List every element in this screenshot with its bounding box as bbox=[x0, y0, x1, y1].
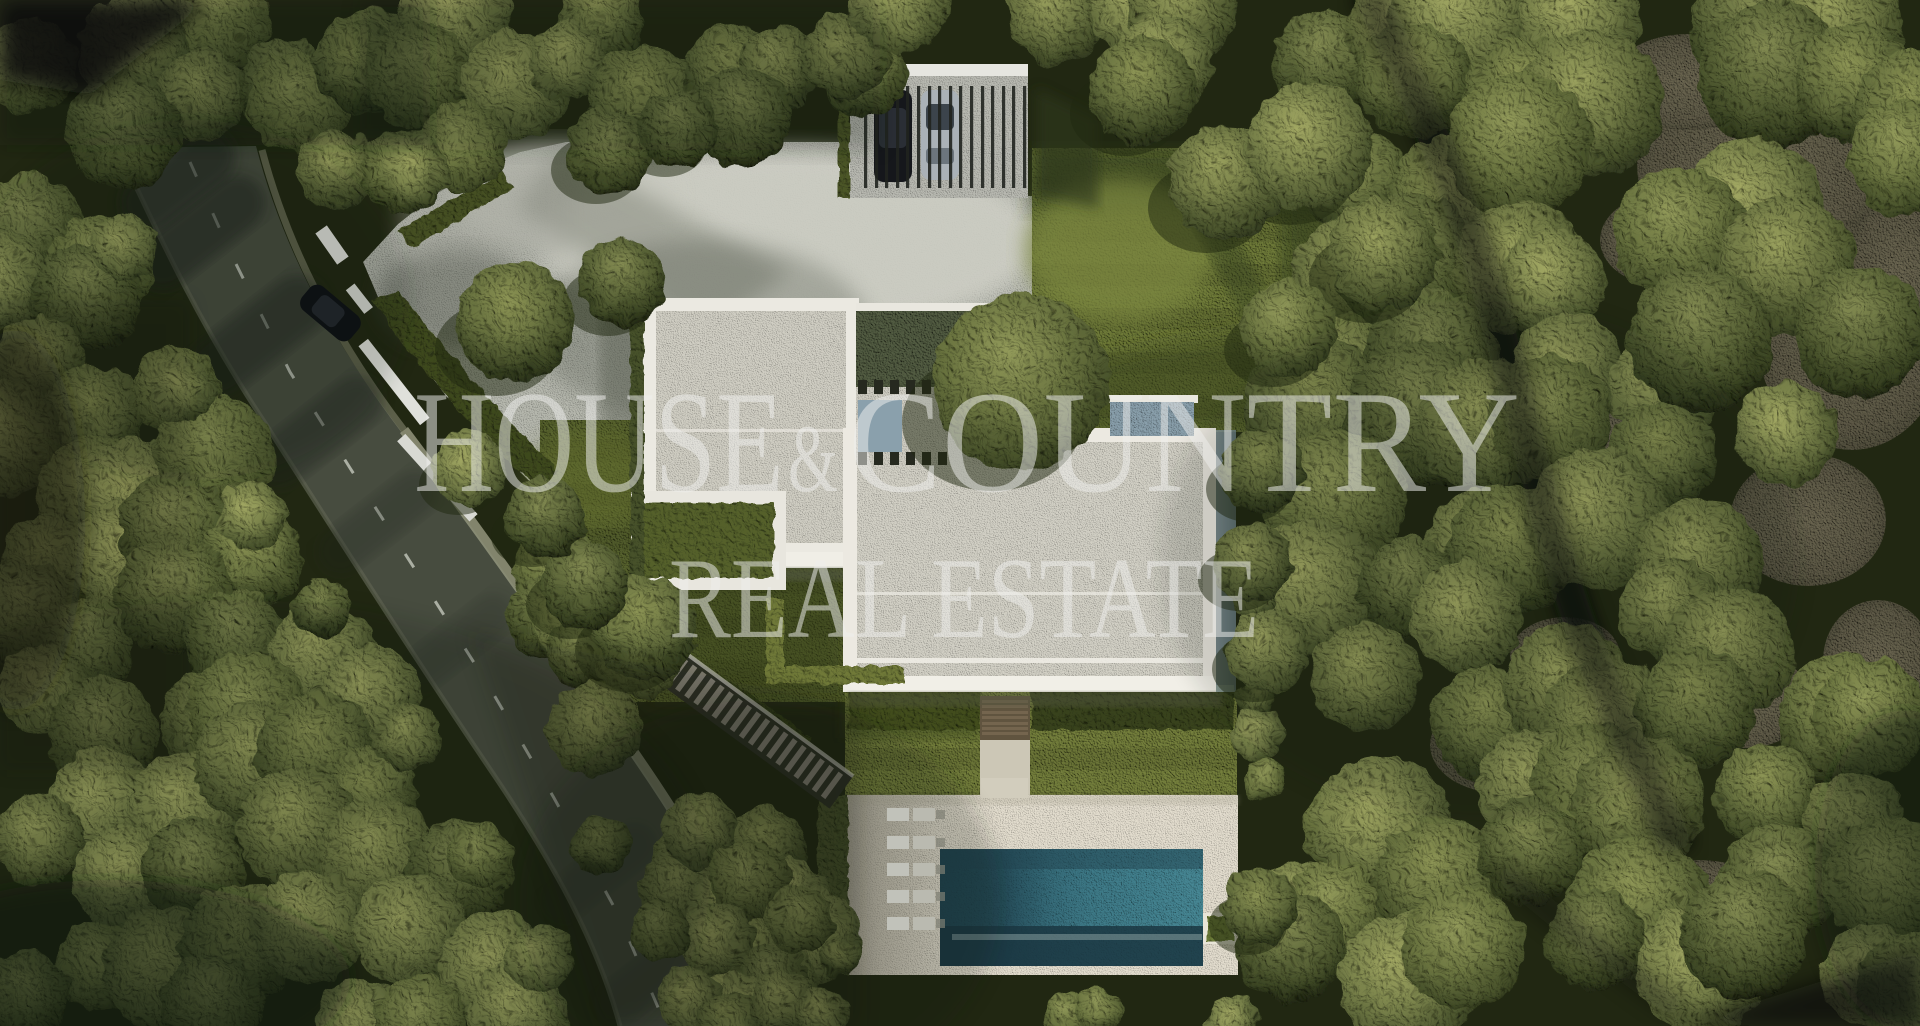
svg-text:REAL ESTATE: REAL ESTATE bbox=[669, 535, 1259, 663]
svg-text:COUNTRY: COUNTRY bbox=[848, 361, 1520, 523]
svg-text:HOUSE: HOUSE bbox=[414, 361, 784, 523]
svg-text:&: & bbox=[788, 405, 838, 512]
